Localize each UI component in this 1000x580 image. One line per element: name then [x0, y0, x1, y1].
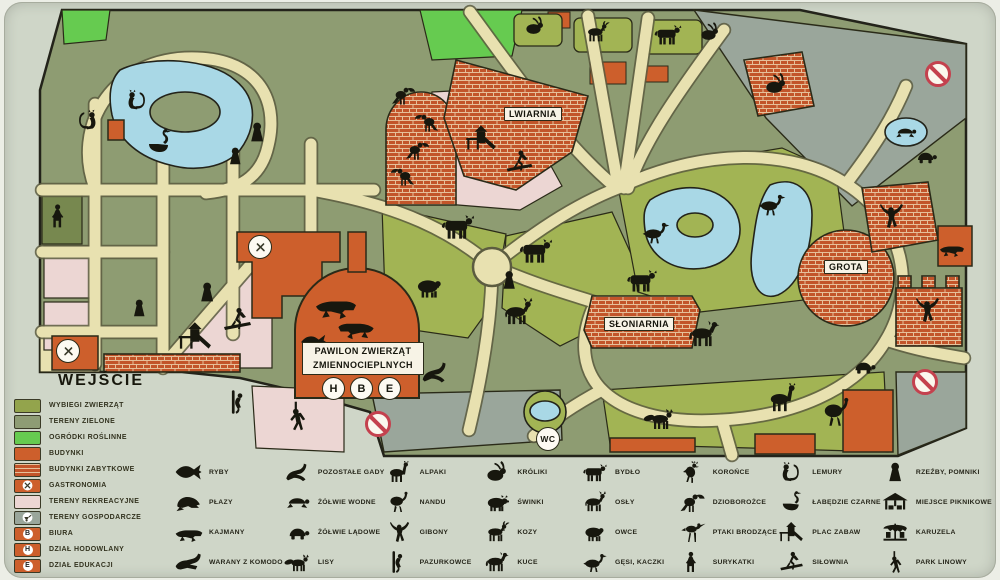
- crowned-bird-icon: [678, 461, 708, 483]
- legend-animal-label: KRÓLIKI: [517, 469, 547, 476]
- pond-island: [677, 213, 713, 237]
- legend-item-fish: RYBY: [174, 459, 283, 485]
- legend-animal-label: PTAKI BRODZĄCE: [713, 529, 778, 536]
- enclosure: [42, 194, 82, 244]
- legend-item-turtle-land: ŻÓŁWIE LĄDOWE: [283, 519, 385, 545]
- legend-item-caiman: KAJMANY: [174, 519, 283, 545]
- legend-item-nandu: NANDU: [385, 489, 483, 515]
- playground-icon: [777, 521, 807, 543]
- legend-zone-label: TERENY REKREACYJNE: [49, 498, 139, 505]
- carousel-icon: [881, 521, 911, 543]
- gastronomy-badge: [56, 339, 80, 363]
- legend-item-rabbit: KRÓLIKI: [482, 459, 580, 485]
- meerkat-icon: [678, 551, 708, 573]
- cow-icon: [580, 461, 610, 483]
- legend-letter-badge: H: [23, 545, 33, 555]
- no-entry-icon: [365, 411, 391, 437]
- legend-animal-label: PŁAZY: [209, 499, 233, 506]
- legend-animal-label: PAZURKOWCE: [420, 559, 472, 566]
- legend-animal-label: ŚWINKI: [517, 499, 543, 506]
- fish-icon: [174, 461, 204, 483]
- wading-bird-icon: [678, 521, 708, 543]
- legend-item-pig: ŚWINKI: [482, 489, 580, 515]
- legend-item-hornbill: DZIOBOROŻCE: [678, 489, 778, 515]
- legend-animal-label: GĘSI, KACZKI: [615, 559, 664, 566]
- legend-item-donkey: OSŁY: [580, 489, 678, 515]
- legend-item-pony: KUCE: [482, 549, 580, 575]
- legend-animal-label: LISY: [318, 559, 334, 566]
- legend-animal-label: SIŁOWNIA: [812, 559, 848, 566]
- legend-animal-label: RYBY: [209, 469, 229, 476]
- path-roundabout: [473, 248, 511, 286]
- varan-icon: [174, 551, 204, 573]
- legend-zone-item: TERENY ZIELONE: [14, 415, 182, 428]
- legend-zone-item: OGRÓDKI ROŚLINNE: [14, 431, 182, 444]
- nandu-icon: [385, 491, 415, 513]
- legend-animal-label: KOROŃCE: [713, 469, 750, 476]
- legend-animal-label: MIEJSCE PIKNIKOWE: [916, 499, 992, 506]
- legend-item-carousel: KARUZELA: [881, 519, 992, 545]
- legend-item-goat: KOZY: [482, 519, 580, 545]
- cart-icon: [22, 512, 33, 523]
- building-castle-merlon: [898, 276, 911, 288]
- building-pavilion-tower: [348, 232, 366, 272]
- building-castle-merlon: [922, 276, 935, 288]
- legend-animal-label: NANDU: [420, 499, 446, 506]
- legend-item-meerkat: SURYKATKI: [678, 549, 778, 575]
- gazebo-icon: [881, 491, 911, 513]
- label-pavilion-line2: ZMIENNOCIEPLNYCH: [308, 359, 418, 373]
- legend-item-alpaca: ALPAKI: [385, 459, 483, 485]
- legend-item-goose: GĘSI, KACZKI: [580, 549, 678, 575]
- swan-icon: [777, 491, 807, 513]
- legend-animal-label: ALPAKI: [420, 469, 447, 476]
- gastronomy-badge: [248, 235, 272, 259]
- legend-animal-label: KOZY: [517, 529, 537, 536]
- legend-item-swan: ŁABĘDZIE CZARNE: [777, 489, 881, 515]
- legend-animal-label: OSŁY: [615, 499, 635, 506]
- label-sloniarnia: SŁONIARNIA: [604, 317, 674, 331]
- legend-item-sheep: OWCE: [580, 519, 678, 545]
- hornbill-icon: [678, 491, 708, 513]
- legend-animal-label: KUCE: [517, 559, 537, 566]
- legend-item-cow: BYDŁO: [580, 459, 678, 485]
- legend-zone-swatch: [14, 399, 41, 413]
- legend-zone-swatch: [14, 431, 41, 445]
- legend-animal-label: SURYKATKI: [713, 559, 755, 566]
- marmoset-silhouette: [232, 390, 242, 413]
- lizard-icon: [283, 461, 313, 483]
- legend-letter-badge: E: [23, 561, 33, 571]
- legend-zone-item: BBIURA: [14, 527, 182, 540]
- legend-zone-item: TERENY GOSPODARCZE: [14, 511, 182, 524]
- marmoset-icon: [385, 551, 415, 573]
- legend-animal-column: KRÓLIKIŚWINKIKOZYKUCE: [482, 459, 580, 575]
- legend-zone-item: TERENY REKREACYJNE: [14, 495, 182, 508]
- pond-fish: [530, 401, 560, 421]
- legend-zone-item: BUDYNKI ZABYTKOWE: [14, 463, 182, 476]
- pony-icon: [482, 551, 512, 573]
- legend-zone-item: WYBIEGI ZWIERZĄT: [14, 399, 182, 412]
- legend-animal-label: DZIOBOROŻCE: [713, 499, 767, 506]
- turtle-land-icon: [283, 521, 313, 543]
- dept-b-badge: B: [350, 377, 373, 400]
- no-entry-icon: [925, 61, 951, 87]
- legend-zone-swatch: B: [14, 527, 41, 541]
- legend-item-lemur: LEMURY: [777, 459, 881, 485]
- legend-letter-badge: B: [23, 529, 33, 539]
- legend-zone-label: BIURA: [49, 530, 73, 537]
- pond-island: [150, 92, 220, 132]
- legend-zone-label: BUDYNKI ZABYTKOWE: [49, 466, 135, 473]
- label-pavilion: PAWILON ZWIERZĄT ZMIENNOCIEPLNYCH: [302, 342, 424, 375]
- legend-item-statue: RZEŹBY, POMNIKI: [881, 459, 992, 485]
- legend-item-frog: PŁAZY: [174, 489, 283, 515]
- legend-animal-label: PLAC ZABAW: [812, 529, 860, 536]
- gym-icon: [777, 551, 807, 573]
- building-castle-merlon: [946, 276, 959, 288]
- legend-zone-label: BUDYNKI: [49, 450, 84, 457]
- legend-item-fox: LISY: [283, 549, 385, 575]
- legend-zone-label: DZIAŁ EDUKACJI: [49, 562, 113, 569]
- legend-zone-swatch: [14, 463, 41, 477]
- legend-animal-label: BYDŁO: [615, 469, 640, 476]
- legend-animal-label: KARUZELA: [916, 529, 956, 536]
- legend-zone-label: TERENY ZIELONE: [49, 418, 115, 425]
- legend-animal-label: RZEŹBY, POMNIKI: [916, 469, 980, 476]
- legend-zone-label: OGRÓDKI ROŚLINNE: [49, 434, 127, 441]
- legend-zone-label: DZIAŁ HODOWLANY: [49, 546, 124, 553]
- entrance-wall: [104, 354, 240, 372]
- animal-legend: RYBYPŁAZYKAJMANYWARANY Z KOMODOPOZOSTAŁE…: [174, 459, 992, 575]
- legend-animal-label: POZOSTAŁE GADY: [318, 469, 385, 476]
- turtle-water-icon: [283, 491, 313, 513]
- legend-zone-swatch: H: [14, 543, 41, 557]
- legend-zone-swatch: [14, 479, 41, 493]
- utensils-icon: [22, 480, 33, 491]
- gibbon-icon: [385, 521, 415, 543]
- legend-animal-label: KAJMANY: [209, 529, 245, 536]
- utensils-icon: [254, 241, 267, 254]
- legend-zone-item: EDZIAŁ EDUKACJI: [14, 559, 182, 572]
- dept-h-badge: H: [322, 377, 345, 400]
- label-pavilion-line1: PAWILON ZWIERZĄT: [308, 345, 418, 359]
- legend-animal-label: WARANY Z KOMODO: [209, 559, 283, 566]
- frog-icon: [174, 491, 204, 513]
- legend-animal-label: OWCE: [615, 529, 637, 536]
- legend-item-varan: WARANY Z KOMODO: [174, 549, 283, 575]
- legend-zone-label: TERENY GOSPODARCZE: [49, 514, 141, 521]
- legend-zone-swatch: [14, 447, 41, 461]
- legend-animal-column: KOROŃCEDZIOBOROŻCEPTAKI BRODZĄCESURYKATK…: [678, 459, 778, 575]
- legend-zone-swatch: E: [14, 559, 41, 573]
- legend-animal-label: GIBONY: [420, 529, 449, 536]
- legend-zone-swatch: [14, 495, 41, 509]
- wc-badge: WC: [536, 427, 560, 451]
- no-entry-icon: [912, 369, 938, 395]
- zone-legend: WYBIEGI ZWIERZĄTTERENY ZIELONEOGRÓDKI RO…: [14, 399, 182, 572]
- legend-animal-column: ALPAKINANDUGIBONYPAZURKOWCE: [385, 459, 483, 575]
- statue-icon: [881, 461, 911, 483]
- legend-zone-label: WYBIEGI ZWIERZĄT: [49, 402, 124, 409]
- legend-item-gazebo: MIEJSCE PIKNIKOWE: [881, 489, 992, 515]
- fox-icon: [283, 551, 313, 573]
- legend-animal-column: LEMURYŁABĘDZIE CZARNEPLAC ZABAWSIŁOWNIA: [777, 459, 881, 575]
- legend-animal-column: RZEŹBY, POMNIKIMIEJSCE PIKNIKOWEKARUZELA…: [881, 459, 992, 575]
- legend-animal-column: RYBYPŁAZYKAJMANYWARANY Z KOMODO: [174, 459, 283, 575]
- legend-animal-label: ŻÓŁWIE WODNE: [318, 499, 376, 506]
- label-entrance: WEJŚCIE: [58, 372, 144, 390]
- legend-animal-label: PARK LINOWY: [916, 559, 967, 566]
- rabbit-icon: [482, 461, 512, 483]
- legend-zone-item: BUDYNKI: [14, 447, 182, 460]
- legend-animal-label: ŻÓŁWIE LĄDOWE: [318, 529, 380, 536]
- building-right-slant: [862, 182, 938, 252]
- donkey-icon: [580, 491, 610, 513]
- legend-zone-item: GASTRONOMIA: [14, 479, 182, 492]
- legend-item-gym: SIŁOWNIA: [777, 549, 881, 575]
- utensils-icon: [62, 345, 75, 358]
- rope-park-icon: [881, 551, 911, 573]
- legend-item-crowned-bird: KOROŃCE: [678, 459, 778, 485]
- zoo-map-sign: LWIARNIA SŁONIARNIA GROTA PAWILON ZWIERZ…: [0, 0, 1000, 580]
- legend-item-gibbon: GIBONY: [385, 519, 483, 545]
- legend-item-rope-park: PARK LINOWY: [881, 549, 992, 575]
- legend-zone-swatch: [14, 511, 41, 525]
- pig-icon: [482, 491, 512, 513]
- legend-animal-column: BYDŁOOSŁYOWCEGĘSI, KACZKI: [580, 459, 678, 575]
- lemur-icon: [777, 461, 807, 483]
- label-grota: GROTA: [824, 260, 868, 274]
- garden-patch: [62, 10, 110, 44]
- legend-animal-column: POZOSTAŁE GADYŻÓŁWIE WODNEŻÓŁWIE LĄDOWEL…: [283, 459, 385, 575]
- legend-item-lizard: POZOSTAŁE GADY: [283, 459, 385, 485]
- legend-animal-label: ŁABĘDZIE CZARNE: [812, 499, 881, 506]
- goose-icon: [580, 551, 610, 573]
- caiman-icon: [174, 521, 204, 543]
- alpaca-icon: [385, 461, 415, 483]
- legend-item-marmoset: PAZURKOWCE: [385, 549, 483, 575]
- legend-item-playground: PLAC ZABAW: [777, 519, 881, 545]
- legend-item-wading-bird: PTAKI BRODZĄCE: [678, 519, 778, 545]
- goat-icon: [482, 521, 512, 543]
- legend-zone-swatch: [14, 415, 41, 429]
- legend-zone-item: HDZIAŁ HODOWLANY: [14, 543, 182, 556]
- sheep-icon: [580, 521, 610, 543]
- legend-animal-label: LEMURY: [812, 469, 842, 476]
- legend-zone-label: GASTRONOMIA: [49, 482, 107, 489]
- label-lwiarnia: LWIARNIA: [504, 107, 562, 121]
- dept-e-badge: E: [378, 377, 401, 400]
- legend-item-turtle-water: ŻÓŁWIE WODNE: [283, 489, 385, 515]
